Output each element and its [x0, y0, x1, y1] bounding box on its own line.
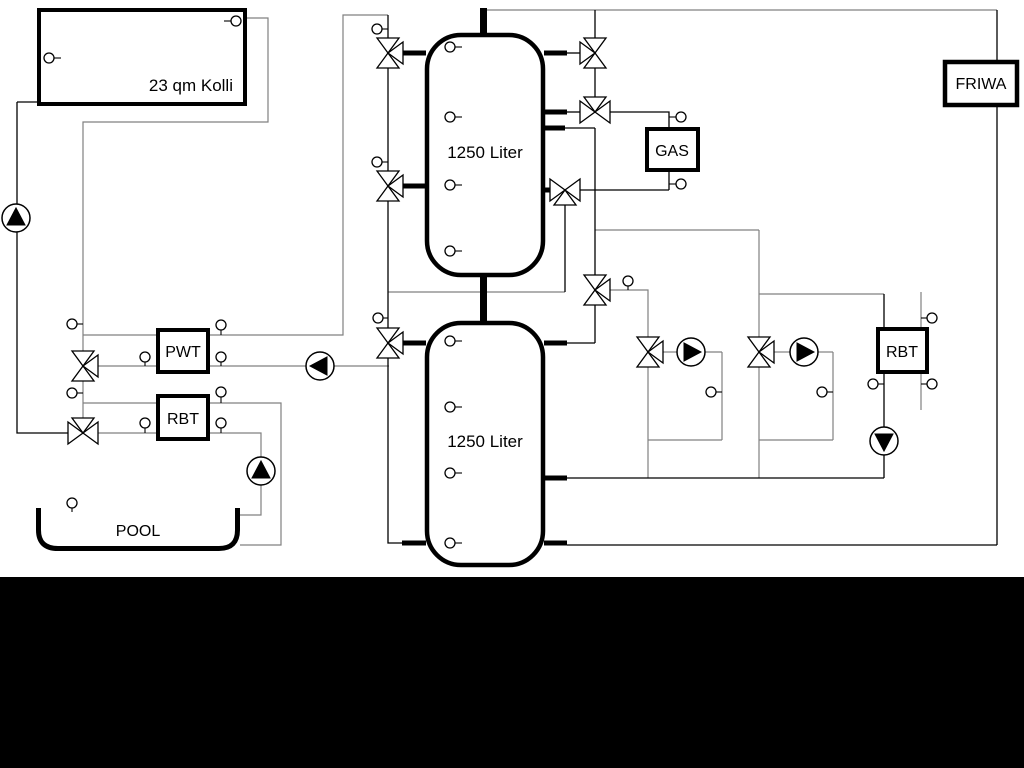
- temperature-sensor-icon: [67, 319, 83, 329]
- pump-icon: [306, 352, 334, 380]
- temperature-sensor-icon: [372, 24, 388, 34]
- temperature-sensor-icon: [706, 387, 722, 397]
- pump-icon: [677, 338, 705, 366]
- bottom-black-band: [0, 577, 1024, 768]
- three-way-valve-icon: [584, 275, 610, 305]
- pump-icon: [247, 457, 275, 485]
- collector-label: 23 qm Kolli: [149, 76, 233, 95]
- tank2-label: 1250 Liter: [447, 432, 523, 451]
- three-way-valve-icon: [637, 337, 663, 367]
- temperature-sensor-icon: [216, 418, 226, 433]
- temperature-sensor-icon: [372, 157, 388, 167]
- friwa-label: FRIWA: [956, 76, 1007, 93]
- pool-label: POOL: [116, 523, 161, 540]
- pump-icon: [2, 204, 30, 232]
- three-way-valve-icon: [748, 337, 774, 367]
- temperature-sensor-icon: [67, 388, 83, 398]
- temperature-sensor-icon: [868, 379, 884, 389]
- schematic-page: 23 qm Kolli 1250 Liter 1250 Liter GAS FR…: [0, 0, 1024, 768]
- rbt-left-label: RBT: [167, 411, 199, 428]
- gas-label: GAS: [655, 143, 689, 160]
- three-way-valve-icon: [580, 97, 610, 123]
- three-way-valve-icon: [68, 418, 98, 444]
- pump-icon: [790, 338, 818, 366]
- temperature-sensor-icon: [140, 418, 150, 433]
- tank1-label: 1250 Liter: [447, 143, 523, 162]
- three-way-valve-icon: [377, 171, 403, 201]
- rbt-right-label: RBT: [886, 344, 918, 361]
- temperature-sensor-icon: [140, 352, 150, 366]
- three-way-valve-icon: [72, 351, 98, 381]
- temperature-sensor-icon: [623, 276, 633, 290]
- three-way-valve-icon: [377, 328, 403, 358]
- three-way-valve-icon: [550, 179, 580, 205]
- temperature-sensor-icon: [216, 320, 226, 335]
- temperature-sensor-icon: [216, 352, 226, 366]
- three-way-valve-icon: [377, 38, 403, 68]
- pwt-label: PWT: [165, 344, 201, 361]
- temperature-sensor-icon: [216, 387, 226, 403]
- temperature-sensor-icon: [373, 313, 388, 323]
- three-way-valve-icon: [580, 38, 606, 68]
- temperature-sensor-icon: [817, 387, 833, 397]
- temperature-sensor-icon: [921, 313, 937, 323]
- temperature-sensor-icon: [669, 179, 686, 189]
- temperature-sensor-icon: [67, 498, 77, 512]
- hydraulic-schematic-canvas: 23 qm Kolli 1250 Liter 1250 Liter GAS FR…: [0, 0, 1024, 768]
- temperature-sensor-icon: [921, 379, 937, 389]
- pump-icon: [870, 427, 898, 455]
- temperature-sensor-icon: [669, 112, 686, 122]
